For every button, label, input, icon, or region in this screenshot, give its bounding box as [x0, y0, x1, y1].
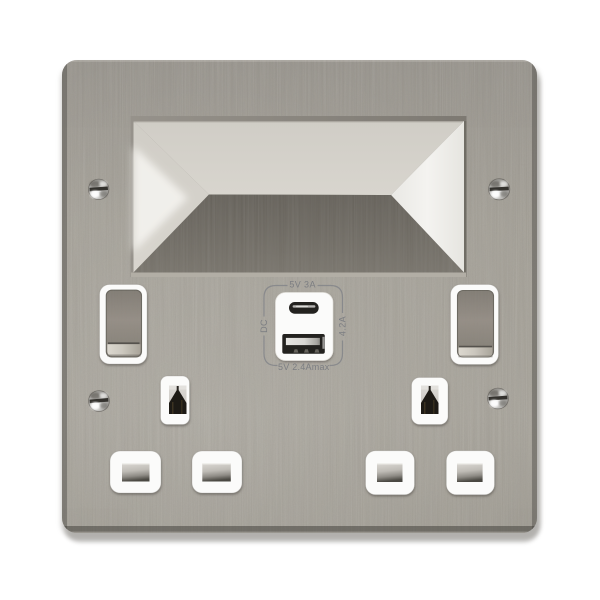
svg-text:DC: DC [259, 319, 269, 333]
svg-text:5V 2.4Amax: 5V 2.4Amax [278, 362, 330, 372]
svg-text:4.2A: 4.2A [338, 316, 348, 336]
svg-text:5V 3A: 5V 3A [289, 279, 316, 289]
